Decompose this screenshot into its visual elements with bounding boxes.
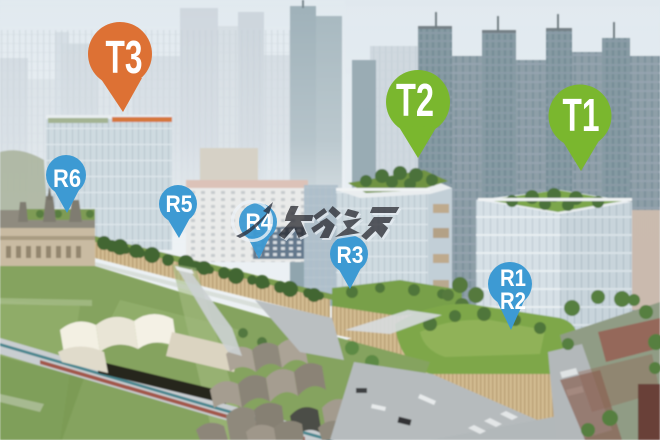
svg-text:R3: R3 — [337, 242, 364, 269]
svg-text:T2: T2 — [396, 74, 434, 126]
svg-text:T3: T3 — [106, 31, 143, 83]
svg-text:R5: R5 — [166, 191, 193, 218]
svg-text:R2: R2 — [500, 288, 526, 315]
svg-text:R6: R6 — [53, 165, 81, 193]
svg-text:T1: T1 — [563, 89, 600, 141]
